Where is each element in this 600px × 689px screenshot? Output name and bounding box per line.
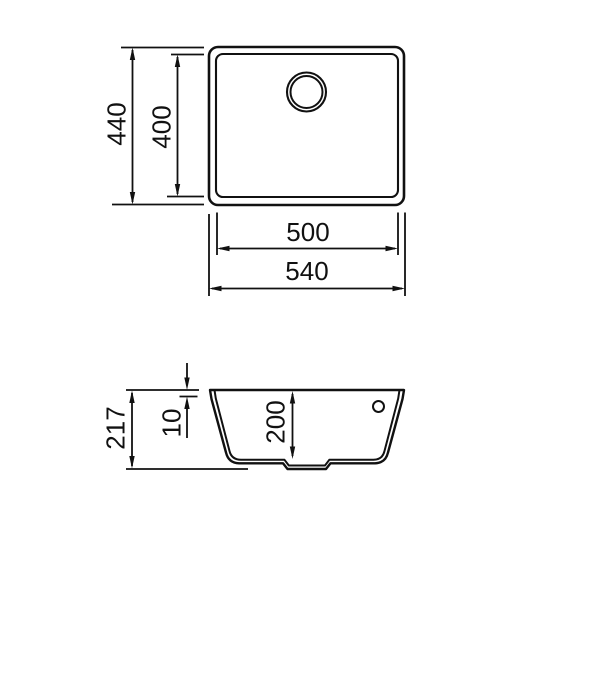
- arrow-left-icon: [217, 246, 230, 251]
- dim-label-200: 200: [261, 400, 291, 443]
- arrow-down-icon: [129, 456, 134, 469]
- arrow-up-icon: [175, 55, 180, 68]
- arrow-down-icon: [184, 378, 189, 391]
- arrow-right-icon: [393, 286, 406, 291]
- sink-outer-rim: [209, 47, 404, 205]
- sink-dimension-drawing: 440 400 500: [0, 0, 600, 689]
- drain-outer-circle: [287, 73, 326, 112]
- dim-label-440: 440: [102, 102, 132, 145]
- dim-label-500: 500: [286, 217, 329, 247]
- dim-label-400: 400: [147, 105, 177, 148]
- dim-label-217: 217: [101, 406, 131, 449]
- arrow-up-icon: [129, 391, 134, 404]
- dimension-inner-height: 400: [147, 55, 205, 197]
- section-view: 217 10 200: [101, 363, 405, 469]
- arrow-up-icon: [184, 397, 189, 410]
- technical-drawing-page: 440 400 500: [0, 0, 600, 689]
- arrow-left-icon: [209, 286, 222, 291]
- top-view: 440 400 500: [102, 47, 406, 296]
- dimension-rim-inset: 10: [157, 363, 198, 438]
- arrow-right-icon: [386, 246, 399, 251]
- dim-label-540: 540: [285, 256, 328, 286]
- dimension-inner-width: 500: [217, 213, 398, 256]
- dim-label-10: 10: [157, 409, 187, 438]
- arrow-up-icon: [130, 48, 135, 61]
- arrow-down-icon: [175, 184, 180, 197]
- arrow-down-icon: [130, 192, 135, 205]
- drain-inner-circle: [291, 76, 323, 108]
